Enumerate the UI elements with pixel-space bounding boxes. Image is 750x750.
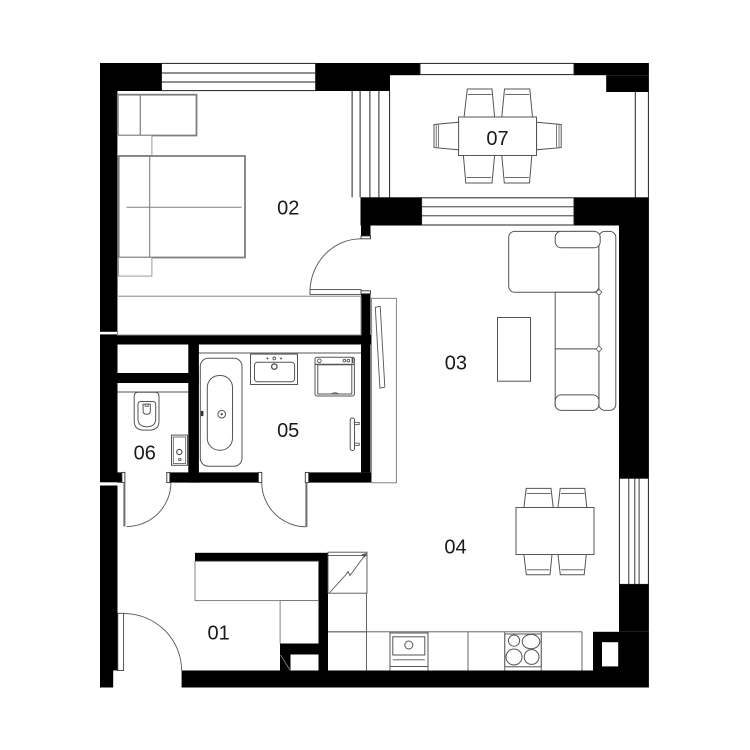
- svg-text:07: 07: [486, 128, 508, 150]
- svg-text:06: 06: [134, 443, 156, 465]
- svg-text:01: 01: [207, 622, 229, 644]
- svg-text:05: 05: [277, 420, 299, 442]
- svg-text:04: 04: [444, 537, 466, 559]
- svg-text:03: 03: [445, 353, 467, 375]
- svg-text:02: 02: [277, 198, 299, 220]
